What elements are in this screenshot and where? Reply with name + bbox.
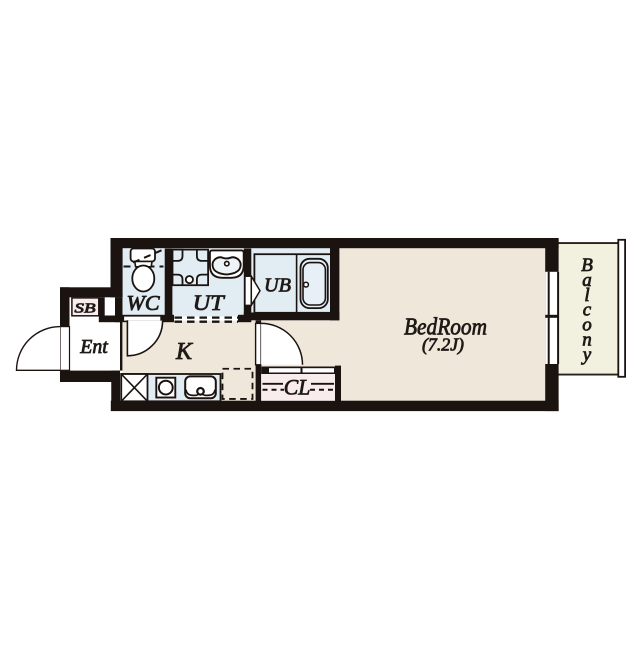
svg-text:SB: SB: [75, 302, 97, 317]
svg-text:y: y: [581, 344, 592, 365]
svg-text:(7.2J): (7.2J): [422, 335, 464, 355]
svg-text:CL: CL: [284, 374, 311, 399]
svg-text:K: K: [175, 339, 194, 365]
svg-text:WC: WC: [127, 291, 161, 315]
svg-text:Ent: Ent: [79, 336, 108, 358]
svg-text:UT: UT: [193, 290, 226, 315]
svg-text:UB: UB: [264, 275, 291, 297]
